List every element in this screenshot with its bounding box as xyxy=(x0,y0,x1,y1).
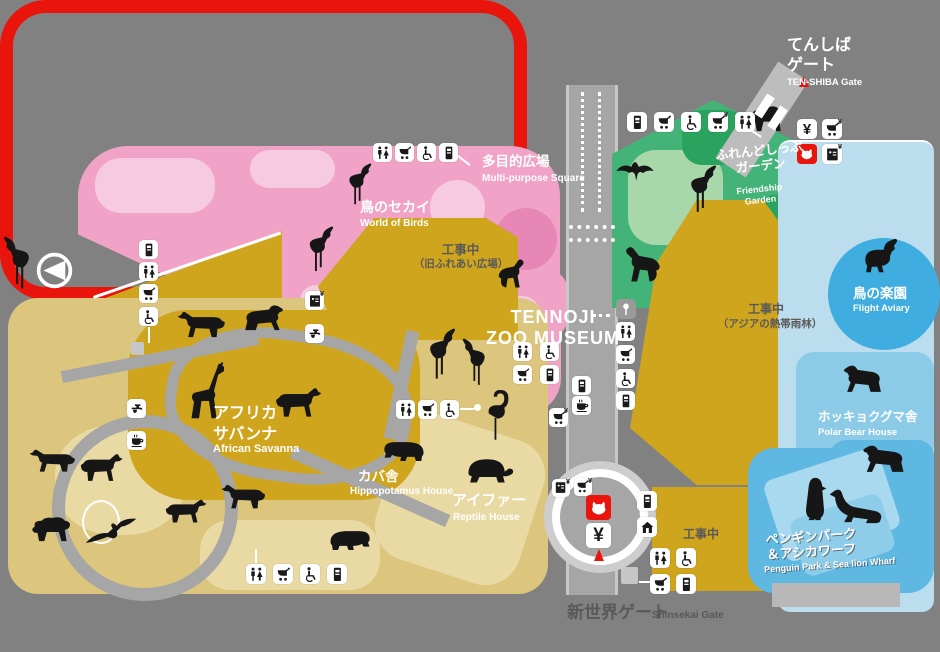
restroom-icon xyxy=(246,564,266,584)
restroom-icon xyxy=(139,262,158,281)
connector-line xyxy=(460,408,474,410)
bird-silhouette xyxy=(2,236,36,292)
vending-machine-icon xyxy=(616,391,635,410)
area-label-construction-fureai: 工事中 xyxy=(398,243,523,258)
stroller-icon xyxy=(513,365,532,384)
area-label-flight-aviary: 鳥の楽園 xyxy=(853,286,907,302)
quad-silhouette xyxy=(163,498,208,526)
zone-pink-patch xyxy=(250,150,335,188)
tenshiba-gate-label: てんしば ゲート xyxy=(787,36,851,75)
stroller-icon xyxy=(139,284,158,303)
stroller-icon xyxy=(654,112,674,132)
area-label-hippo-house: カバ舎 xyxy=(358,469,399,485)
ticket-counter-icon: ¥ xyxy=(797,119,817,139)
area-label-construction-asia: 工事中 xyxy=(748,302,784,317)
wheelchair-icon xyxy=(417,143,436,162)
bird-silhouette xyxy=(303,226,335,274)
quad-silhouette xyxy=(273,386,323,421)
area-label-hippo-house-en: Hippopotamus House xyxy=(350,486,453,498)
quad-silhouette xyxy=(176,310,228,341)
stroller-rental-icon: ¥ xyxy=(708,112,728,132)
coin-locker-icon: ¥ xyxy=(822,144,842,164)
penguin-silhouette xyxy=(802,476,828,522)
area-label-flight-aviary-en: Flight Aviary xyxy=(853,303,910,315)
compass-icon xyxy=(36,252,73,289)
area-label-museum: TENNOJI ZOO MUSEUM xyxy=(478,307,628,348)
sheep-silhouette xyxy=(28,513,76,544)
vending-machine-icon xyxy=(676,574,696,594)
connector-dot xyxy=(474,404,481,411)
connector-line xyxy=(148,327,150,343)
bat-silhouette xyxy=(615,160,655,182)
cafe-icon xyxy=(127,431,146,450)
zone-pink-patch xyxy=(95,158,215,213)
cafe-icon xyxy=(572,396,591,415)
stroller-icon xyxy=(273,564,293,584)
tenshiba-gate-label-en: TEN-SHIBA Gate xyxy=(787,77,862,89)
coin-locker-icon: ¥ xyxy=(552,479,570,497)
quad-silhouette xyxy=(220,483,268,512)
stroller-rental-icon: ¥ xyxy=(574,478,592,496)
duck-silhouette xyxy=(858,238,902,274)
ticket-counter-icon: ¥ xyxy=(586,523,611,548)
restroom-icon xyxy=(396,400,415,419)
monkey-silhouette xyxy=(616,243,662,287)
vending-machine-icon xyxy=(540,365,559,384)
vending-machine-icon xyxy=(637,491,657,511)
vending-machine-icon xyxy=(327,564,347,584)
wheelchair-icon xyxy=(440,400,459,419)
area-label-reptile-house: アイファー xyxy=(452,492,526,510)
area-label-construction-south: 工事中 xyxy=(683,527,719,542)
vending-machine-icon xyxy=(439,143,458,162)
area-label-african-savanna: アフリカ サバンナ xyxy=(213,404,277,446)
area-label-polar-bear: ホッキョクグマ舎 xyxy=(818,410,918,425)
drinking-fountain-icon xyxy=(127,399,146,418)
drinking-fountain-icon xyxy=(305,324,324,343)
eagle-silhouette xyxy=(84,516,138,552)
wheelchair-icon xyxy=(676,548,696,568)
wheelchair-icon xyxy=(616,369,635,388)
road-dotted-line xyxy=(598,92,601,212)
area-label-reptile-house-en: Reptile House xyxy=(453,512,520,524)
area-label-multi-purpose: 多目的広場 xyxy=(482,154,550,170)
gift-shop-icon xyxy=(637,517,657,537)
kiosk-box xyxy=(621,567,638,584)
road-dotted-line xyxy=(581,92,584,212)
area-label-penguin-park: ペンギンパーク ＆アシカワーフ xyxy=(765,527,858,563)
bear-silhouette xyxy=(841,363,885,396)
bear-silhouette xyxy=(241,303,286,334)
quad-silhouette xyxy=(78,452,124,485)
area-label-construction-asia-note: （アジアの熱帯雨林） xyxy=(700,318,840,331)
stroller-icon xyxy=(395,143,414,162)
vending-machine-icon xyxy=(627,112,647,132)
restroom-icon xyxy=(373,143,392,162)
crosswalk xyxy=(569,238,615,242)
wharf-pier xyxy=(772,583,900,607)
wheelchair-icon xyxy=(681,112,701,132)
stroller-rental-icon: ¥ xyxy=(822,119,842,139)
hippo-silhouette xyxy=(380,436,428,463)
wheelchair-icon xyxy=(300,564,320,584)
restroom-icon xyxy=(735,112,755,132)
bird-silhouette xyxy=(423,328,457,382)
turtle-silhouette xyxy=(460,453,514,484)
area-label-polar-bear-en: Polar Bear House xyxy=(818,427,897,439)
vending-machine-icon xyxy=(139,240,158,259)
hippo-silhouette xyxy=(326,525,374,552)
zoo-map: ¥¥¥¥¥¥¥¥¥ てんしば ゲート TEN-SHIBA Gate 新世界ゲート… xyxy=(0,0,940,652)
stroller-icon xyxy=(650,574,670,594)
shinsekai-gate-label-en: Shinsekai Gate xyxy=(652,610,724,622)
stroller-rental-icon: ¥ xyxy=(549,408,568,427)
seal-silhouette xyxy=(826,480,884,526)
coin-locker-icon: ¥ xyxy=(305,291,324,310)
area-label-multi-purpose-en: Multi-purpose Square xyxy=(482,173,585,185)
wheelchair-icon xyxy=(139,307,158,326)
quad-silhouette xyxy=(28,448,78,475)
connector-line xyxy=(255,549,257,563)
zoo-logo-icon xyxy=(586,495,611,520)
crosswalk xyxy=(569,225,615,229)
bear-silhouette xyxy=(860,443,908,476)
flamingo-silhouette xyxy=(484,390,510,444)
area-label-african-savanna-en: African Savanna xyxy=(213,443,299,456)
roundabout-marker-icon xyxy=(594,549,604,561)
area-label-world-of-birds-en: World of Birds xyxy=(360,218,429,230)
area-label-world-of-birds: 鳥のセカイ xyxy=(360,199,430,216)
stroller-icon xyxy=(418,400,437,419)
area-label-construction-fureai-note: （旧ふれあい広場） xyxy=(372,258,550,271)
restroom-icon xyxy=(650,548,670,568)
vending-machine-icon xyxy=(572,376,591,395)
kiosk-box xyxy=(131,342,144,355)
